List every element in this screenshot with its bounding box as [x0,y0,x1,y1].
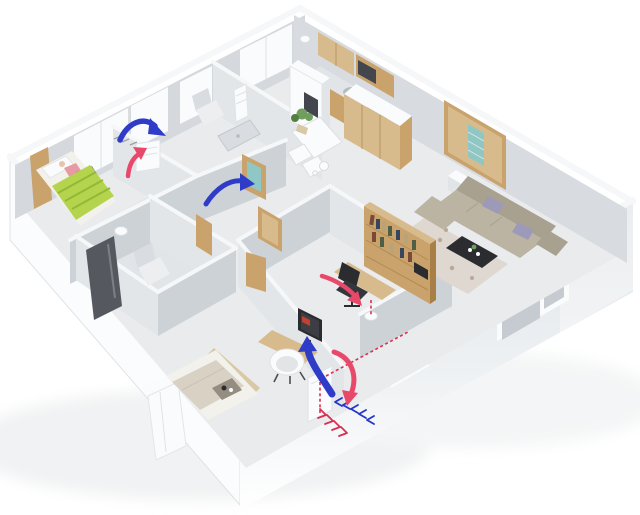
floor-plan-render [0,0,640,515]
kettle-icon [320,162,329,171]
main-bedroom-door [246,252,266,292]
cup-icon [313,171,317,175]
bathroom-ceiling-lamp [115,227,128,236]
towel-radiator [234,84,248,122]
smoke-detector-icon [300,35,310,43]
